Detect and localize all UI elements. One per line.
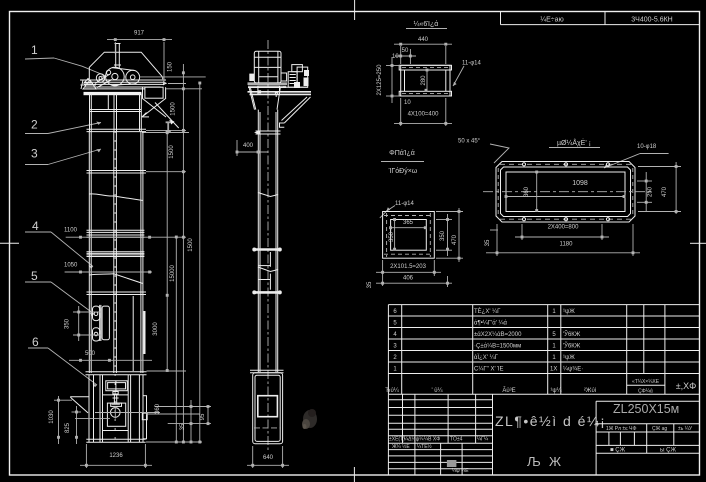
svg-text:3: 3 [31, 147, 38, 161]
svg-text:1Ж Рл ±є ЧΦ: 1Ж Рл ±є ЧΦ [606, 426, 636, 432]
svg-text:Ãύ³Е: Ãύ³Е [502, 387, 515, 394]
svg-text:4: 4 [32, 219, 39, 233]
svg-text:3Ч400-5.6КН: 3Ч400-5.6КН [631, 17, 672, 24]
svg-text:µØ¼ÅχĖ' ¡: µØ¼ÅχĖ' ¡ [557, 138, 591, 147]
svg-text:280: 280 [421, 75, 427, 86]
svg-text:406: 406 [403, 276, 414, 282]
svg-text:1500: 1500 [169, 145, 175, 159]
svg-text:' ύ¼: ' ύ¼ [431, 388, 443, 394]
svg-text:11-φ14: 11-φ14 [395, 201, 414, 207]
svg-text:1100: 1100 [64, 228, 78, 234]
svg-text:50: 50 [402, 48, 409, 54]
svg-text:917: 917 [134, 31, 145, 37]
svg-text:¹ψ¼: ¹ψ¼ [550, 388, 562, 394]
svg-text:4X100=400: 4X100=400 [408, 112, 440, 118]
svg-text:2X125=250: 2X125=250 [377, 64, 383, 96]
svg-text:ZL¶•ê½ì d é¼¡: ZL¶•ê½ì d é¼¡ [495, 413, 606, 429]
svg-text:360: 360 [524, 186, 530, 197]
svg-text:Ж: Ж [549, 454, 561, 469]
svg-text:35: 35 [485, 239, 491, 246]
svg-text:10: 10 [404, 100, 411, 106]
svg-text:470: 470 [662, 186, 668, 197]
svg-text:¼ψ¾Е·: ¼ψ¾Е· [563, 367, 583, 373]
svg-text:Ж¼ ½Е: Ж¼ ½Е [392, 443, 410, 450]
svg-text:ΦΠάΊ¿ά: ΦΠάΊ¿ά [389, 149, 415, 157]
svg-text:ÇΦ¼ά: ÇΦ¼ά [638, 388, 653, 395]
svg-text:350: 350 [440, 230, 446, 241]
svg-text:1500: 1500 [171, 102, 177, 116]
svg-text:250: 250 [648, 186, 654, 197]
svg-text:'Ў6КЖ: 'Ў6КЖ [563, 342, 581, 350]
svg-text:«Τ¼Х×¼ΧЕ: «Τ¼Х×¼ΧЕ [632, 379, 660, 385]
svg-text:50 x 45°: 50 x 45° [458, 139, 481, 145]
svg-text:5: 5 [31, 269, 38, 283]
svg-text:±ΧЕ(Τ): ±ΧЕ(Τ) [389, 437, 405, 443]
svg-text:²Жύі: ²Жύі [584, 388, 596, 394]
svg-text:¼Β ΧΦ: ¼Β ΧΦ [424, 437, 440, 443]
svg-text:¹ψЖ: ¹ψЖ [563, 355, 575, 361]
svg-text:·Ç±ά¼Β=1500мм: ·Ç±ά¼Β=1500мм [474, 343, 521, 350]
svg-text:±άΧ2Х¼άΒ=2000: ±άΧ2Х¼άΒ=2000 [474, 331, 522, 338]
svg-text:2X400=800: 2X400=800 [548, 225, 580, 231]
svg-text:1236: 1236 [109, 453, 123, 459]
svg-text:ΤΟ±4: ΤΟ±4 [450, 437, 463, 443]
svg-text:10: 10 [392, 54, 399, 60]
svg-text:ΤÈ¿Χ' ¼Γ: ΤÈ¿Χ' ¼Γ [474, 308, 501, 315]
svg-text:Љ: Љ [527, 454, 541, 469]
svg-text:35: 35 [367, 281, 373, 288]
svg-text:±,XΦ: ±,XΦ [676, 381, 697, 391]
svg-text:1: 1 [31, 43, 38, 57]
svg-text:440: 440 [418, 37, 429, 43]
svg-text:470: 470 [452, 234, 458, 245]
svg-text:'Ў6КЖ: 'Ў6КЖ [563, 330, 581, 338]
svg-text:3000: 3000 [153, 322, 159, 336]
svg-text:1X: 1X [550, 367, 557, 373]
svg-text:1030: 1030 [49, 410, 55, 424]
svg-text:1180: 1180 [560, 242, 574, 248]
svg-text:±ь ¼У: ±ь ¼У [678, 426, 693, 432]
svg-text:35: 35 [180, 423, 186, 430]
svg-text:2: 2 [31, 118, 38, 132]
svg-text:1500: 1500 [188, 238, 194, 252]
svg-text:ÇЖ аg: ÇЖ аg [652, 426, 667, 432]
svg-text:ά¶•¼Γ'ά' ¼ά: ά¶•¼Γ'ά' ¼ά [474, 320, 508, 327]
svg-text:11-φ14: 11-φ14 [462, 61, 481, 67]
svg-text:¹ψЖ: ¹ψЖ [563, 309, 575, 315]
svg-text:350: 350 [389, 231, 395, 242]
svg-text:400: 400 [243, 143, 254, 149]
svg-text:825: 825 [65, 422, 71, 433]
svg-text:365: 365 [403, 220, 414, 226]
svg-text:¼ψ ¼Е: ¼ψ ¼Е [452, 468, 469, 474]
svg-text:10-φ18: 10-φ18 [637, 144, 657, 150]
svg-text:¼Γ¼: ¼Γ¼ [477, 437, 489, 443]
svg-text:1098: 1098 [572, 180, 588, 187]
svg-text:500: 500 [85, 351, 96, 357]
svg-text:¼Е÷аю: ¼Е÷аю [540, 17, 564, 24]
svg-text:άЇ¿Χ' ¼Γ: άЇ¿Χ' ¼Γ [474, 354, 499, 361]
svg-text:1050: 1050 [64, 263, 78, 269]
svg-text:150: 150 [168, 61, 174, 72]
svg-text:¼«6Ί¿ά: ¼«6Ί¿ά [414, 20, 439, 28]
svg-text:350: 350 [65, 318, 71, 329]
svg-text:¼Δ½ψ¼: ¼Δ½ψ¼ [404, 436, 424, 443]
svg-text:15000: 15000 [170, 264, 176, 281]
svg-text:640: 640 [263, 455, 274, 461]
svg-text:ZL250Х15м: ZL250Х15м [613, 402, 679, 416]
svg-text:95: 95 [200, 413, 206, 420]
svg-text:2X101.5=203: 2X101.5=203 [390, 264, 427, 270]
svg-text:■ ÇЖ: ■ ÇЖ [610, 448, 626, 454]
svg-text:6: 6 [32, 335, 39, 349]
svg-text:360: 360 [155, 403, 161, 414]
svg-text:С¼Γ" Χ' ΊЕ: С¼Γ" Χ' ΊЕ [474, 367, 504, 373]
svg-text:Ђύ¼: Ђύ¼ [385, 388, 399, 394]
svg-text:ьι ÇЖ: ьι ÇЖ [660, 448, 676, 454]
svg-text:¼ΤЕ½: ¼ΤЕ½ [417, 443, 433, 450]
svg-text:ΊΓόĐý×ω: ΊΓόĐý×ω [388, 167, 418, 175]
